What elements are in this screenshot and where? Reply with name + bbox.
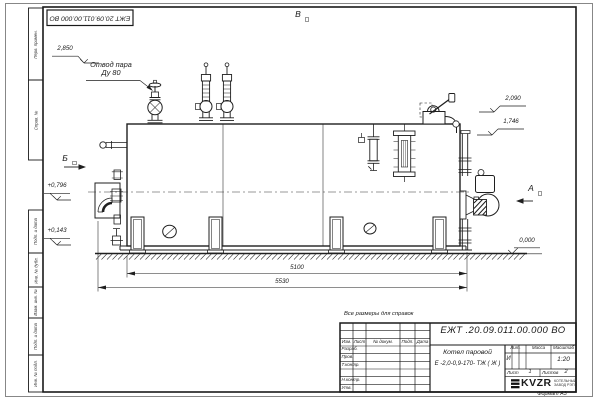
level-2850: 2,850 [51,46,79,53]
kvzr-logo-icon [511,379,520,388]
tb-col-docum: № докум. [366,340,400,345]
tb-row-utv: Утв. [342,386,352,391]
top-doc-number: ЕЖТ 20.09.011.00.000 ВО [47,10,133,26]
margin-label: Взам. инв. № [33,289,38,316]
view-a-mark [538,191,543,196]
tb-col-list: Лист [353,340,366,345]
margin-label: Инв. № подл. [33,360,38,387]
tb-row-razrab: Разраб. [342,347,358,352]
tb-col-data: Дата [415,340,430,345]
tb-row-tkontr: Т.контр. [342,363,360,368]
steam-outlet-annotation: Отвод пара Ду 80 [82,61,140,76]
margin-label: Подп. и дата [33,323,38,350]
view-label-b: Б [58,154,72,163]
ground-hatch [96,254,525,260]
tb-row-prov: Пров. [342,355,354,360]
tb-lit-header: Лит. [505,346,526,351]
tb-masshtab-header: Масштаб [551,346,576,351]
tb-col-izm: Изм. [340,340,353,345]
margin-cell-inv-dubl: Инв. № дубл. [29,253,44,287]
margin-cell-podp-data-1: Подп. и дата [29,210,44,253]
level-0143: +0,143 [43,228,71,235]
rear-fan-unit [460,170,499,220]
tb-col-podp: Подп. [400,340,415,345]
reference-note: Все размеры для справок [344,311,413,317]
kvzr-logo-subtext: КОТЕЛЬНЫЙ ЗАВОД РЭП [554,379,577,387]
dim-5530: 5530 [268,279,296,286]
dim-5100: 5100 [283,265,311,272]
tb-scale-value: 1:20 [551,357,576,364]
tb-lit-value: И [505,356,512,362]
tb-massa-header: Масса [526,346,551,351]
tb-sheets-label: Листов [542,371,558,376]
kvzr-logo-sub2: ЗАВОД РЭП [554,383,577,387]
steam-outlet-leader [86,81,153,92]
view-b-mark [72,161,77,166]
margin-cell-sprav-n: Справ. № [29,80,44,160]
tb-sheet-label: Лист [507,371,519,376]
view-label-a: А [524,184,538,193]
kvzr-logo-text: KVZR [521,377,552,389]
tb-sheets-value: 2 [560,370,572,376]
margin-label: Подп. и дата [33,218,38,245]
view-label-v: В [291,10,305,19]
margin-label: Инв. № дубл. [33,257,38,283]
tb-doc-number: ЕЖТ .20.09.011.00.000 ВО [432,326,574,336]
margin-label: Перв. примен. [33,30,38,59]
safety-valve-2 [217,63,235,121]
tb-row-nkontr: Н.контр. [342,378,361,383]
view-v-mark [305,17,310,22]
drawing-sheet: ЕЖТ 20.09.011.00.000 ВО Перв. примен. Сп… [0,0,600,400]
level-2090: 2,090 [499,96,527,103]
margin-cell-inv-podl: Инв. № подл. [29,355,44,392]
level-0796: +0,796 [43,183,71,190]
level-0000: 0,000 [513,238,541,245]
format-label: Формат А3 [528,392,576,398]
tb-product-name-2: Е -2,0-0,9-170- ТЖ ( Ж ) [430,361,505,367]
steam-outlet-line2: Ду 80 [82,69,140,77]
boiler-side-view [88,63,527,260]
tb-sheet-value: 1 [524,370,536,376]
safety-valve-1 [196,63,214,121]
margin-cell-podp-data-2: Подп. и дата [29,318,44,355]
margin-cell-vzam-inv: Взам. инв. № [29,287,44,318]
margin-cell-perv-primen: Перв. примен. [29,8,44,80]
tb-product-name-1: Котел паровой [430,349,505,356]
level-1746: 1,746 [497,119,525,126]
margin-label: Справ. № [33,110,38,130]
